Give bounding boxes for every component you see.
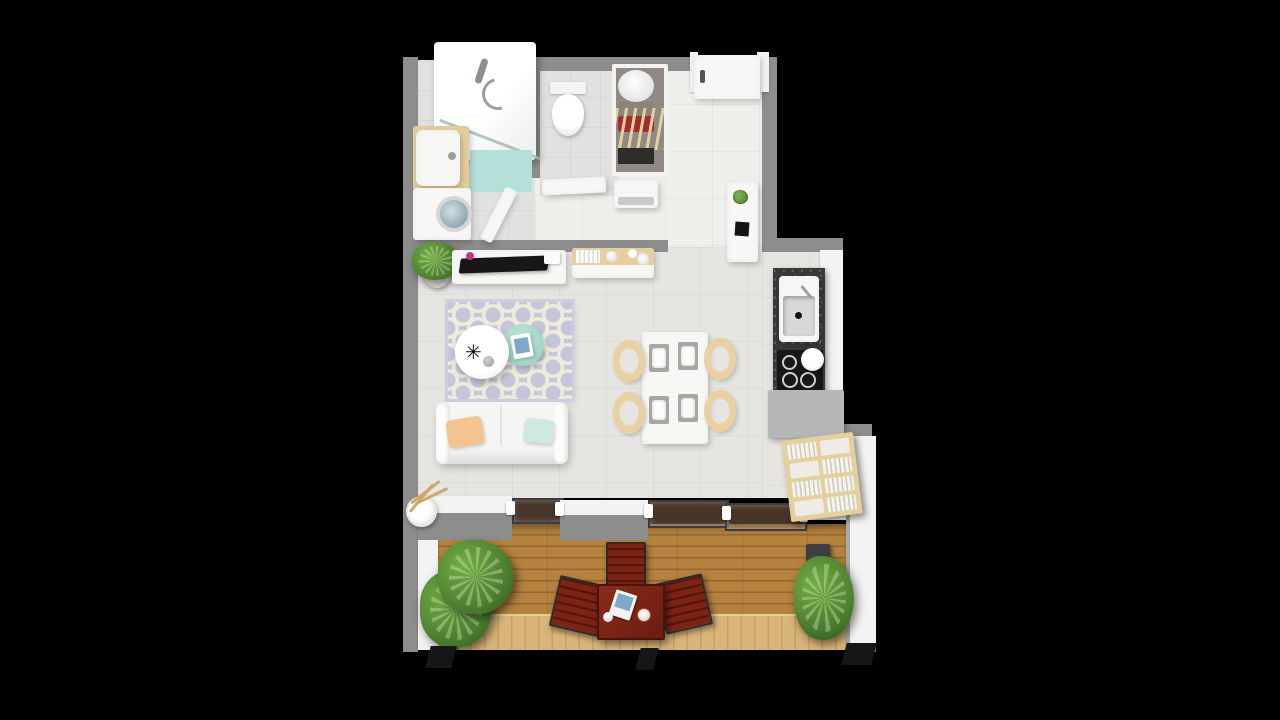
placemat	[649, 396, 669, 424]
dining-table	[642, 332, 708, 444]
stacked-plates	[576, 250, 600, 263]
dining-chair	[704, 338, 736, 380]
open-wardrobe	[612, 64, 668, 176]
placemat	[678, 394, 698, 422]
wood-hangers	[616, 108, 664, 150]
small-plant-icon	[733, 190, 748, 204]
faucet-icon	[448, 152, 456, 160]
placemat	[649, 344, 669, 372]
book-on-table	[510, 332, 534, 359]
pink-vase-icon	[466, 252, 474, 260]
white-canister	[637, 253, 649, 265]
shelf-empty	[820, 437, 851, 455]
kitchen-sink-unit	[779, 276, 819, 342]
white-jar-small	[628, 249, 637, 258]
sofa-armrest-right	[554, 402, 568, 464]
shelf-empty	[789, 460, 820, 478]
washing-machine-door	[436, 196, 472, 232]
burner-ring	[782, 372, 798, 388]
cube-bookshelf	[781, 432, 862, 522]
plate	[681, 346, 695, 366]
round-coffee-table	[455, 325, 509, 379]
black-art-tile	[735, 222, 750, 237]
toilet-cistern	[550, 82, 586, 94]
wardrobe-basket	[618, 70, 654, 102]
outdoor-table	[597, 584, 665, 640]
wc-door	[542, 176, 607, 195]
cup	[603, 612, 613, 622]
foundation-foot-left	[425, 646, 456, 668]
sideboard	[572, 248, 654, 278]
shelf-books	[822, 456, 853, 474]
floor-plan-render: ✳	[0, 0, 1280, 720]
plate-on-cooktop	[801, 348, 824, 371]
pillow-orange	[445, 415, 485, 448]
wardrobe-base	[618, 148, 654, 164]
shelf-books	[791, 479, 822, 497]
dining-chair	[613, 340, 645, 382]
front-door-handle-icon	[700, 70, 705, 83]
plate	[681, 398, 695, 418]
foundation-foot-right	[841, 643, 876, 665]
shelf-empty	[794, 498, 825, 516]
pillow-mint	[523, 417, 555, 444]
balcony-wall-segment-middle-face	[560, 515, 648, 540]
balcony-wall-segment-middle	[560, 500, 648, 515]
white-jar	[606, 251, 617, 262]
shoe-cabinet-front	[618, 197, 654, 205]
placemat	[678, 342, 698, 370]
magazine-cover	[614, 593, 634, 611]
foundation-foot-middle	[635, 648, 658, 670]
plate	[652, 348, 666, 368]
tv-stand-deco-box	[544, 252, 560, 264]
starburst-deco-icon: ✳	[465, 342, 482, 362]
dining-chair	[613, 392, 645, 434]
kitchen-base-cabinet	[768, 390, 844, 438]
sink-drain-icon	[795, 312, 802, 319]
burner-ring	[800, 372, 816, 388]
sliding-glass-door-2	[648, 500, 729, 528]
outdoor-chair-top	[606, 542, 646, 590]
shelf-books	[827, 494, 858, 512]
balcony-plant-left-upper	[438, 540, 514, 614]
door-track-post-4	[722, 506, 731, 520]
sofa-cushion-seam	[500, 406, 502, 446]
deco-sphere	[483, 356, 494, 367]
door-track-post-2	[555, 502, 564, 516]
balcony-plant-right	[794, 556, 854, 640]
plate	[652, 400, 666, 420]
shoe-cabinet	[614, 180, 658, 208]
door-track-post-1	[506, 501, 515, 515]
shelf-books	[787, 442, 818, 460]
bath-mat	[470, 150, 532, 192]
door-track-post-3	[644, 504, 653, 518]
shelf-books	[824, 475, 855, 493]
burner-ring	[782, 355, 797, 370]
book-cover-art	[514, 337, 530, 354]
dining-chair	[704, 390, 736, 432]
cup-red-rim	[637, 608, 651, 622]
